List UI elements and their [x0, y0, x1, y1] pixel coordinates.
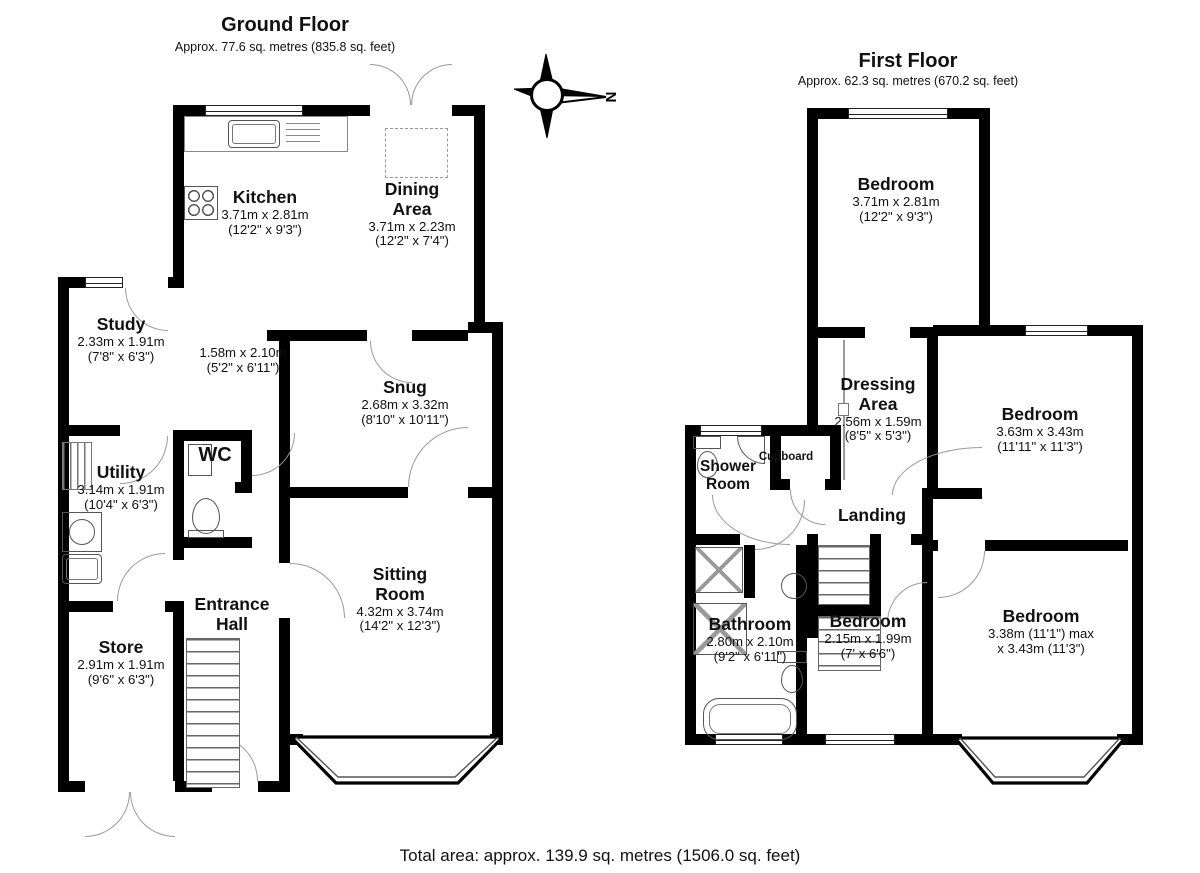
room-label-landing: Landing	[817, 506, 927, 526]
room-dim-metric: 2.91m x 1.91m	[46, 658, 196, 673]
washing-machine	[62, 512, 102, 552]
bay-window	[955, 733, 1125, 789]
room-name: Dining Area	[367, 180, 457, 220]
first-floor-subtitle: Approx. 62.3 sq. metres (670.2 sq. feet)	[798, 74, 1018, 88]
wall	[807, 338, 818, 425]
wall	[258, 781, 290, 792]
room-name: Bedroom	[798, 612, 938, 632]
room-dim-metric: 4.32m x 3.74m	[350, 605, 450, 620]
room-dim-imperial: (11'11" x 11'3")	[955, 440, 1125, 455]
shower-tray	[695, 547, 743, 593]
kitchen-sink	[228, 120, 280, 148]
door-arc	[938, 551, 985, 598]
room-name: Entrance Hall	[177, 595, 287, 635]
room-name: Bedroom	[956, 607, 1126, 627]
room-dim-metric: 3.71m x 2.81m	[185, 208, 345, 223]
toilet	[192, 498, 220, 534]
room-dim-metric: 3.71m x 2.23m	[367, 220, 457, 235]
wall	[184, 537, 252, 548]
room-label-cupboard: Cupboard	[751, 451, 821, 464]
bathtub	[703, 698, 797, 740]
utility-sink	[62, 554, 102, 584]
room-dim-metric: 2.68m x 3.32m	[325, 398, 485, 413]
wall	[685, 534, 740, 545]
dining-dashed-area	[385, 128, 448, 178]
room-dim-metric: 2.15m x 1.99m	[798, 632, 938, 647]
ground-floor-subtitle: Approx. 77.6 sq. metres (835.8 sq. feet)	[175, 40, 395, 54]
wall	[279, 618, 290, 781]
wall	[807, 327, 865, 338]
wall	[895, 734, 962, 745]
bay-window	[291, 732, 503, 790]
ground-floor-title: Ground Floor	[221, 14, 349, 37]
room-dim-line1: 3.38m (11'1") max	[956, 627, 1126, 642]
ground-floor-plan: Kitchen 3.71m x 2.81m (12'2" x 9'3") Din…	[58, 90, 510, 792]
room-dim-metric: 3.14m x 1.91m	[46, 483, 196, 498]
wall	[468, 487, 503, 498]
compass-north-icon: N	[506, 48, 618, 144]
room-dim-metric: 2.56m x 1.59m	[823, 415, 933, 430]
room-dim-imperial: (9'6" x 6'3")	[46, 673, 196, 688]
window	[825, 734, 895, 745]
french-door-arc	[411, 64, 452, 105]
room-label-bedroom2: Bedroom 3.63m x 3.43m (11'11" x 11'3")	[955, 405, 1125, 455]
wall	[933, 540, 938, 551]
door-arc	[408, 427, 468, 487]
wall	[985, 540, 1128, 551]
wall	[168, 277, 184, 288]
room-name: Store	[46, 638, 196, 658]
room-name: Dressing Area	[823, 375, 933, 415]
room-name: Cupboard	[751, 451, 821, 464]
room-dim-metric: 1.58m x 2.10m	[168, 346, 318, 361]
pedestal-basin	[781, 573, 807, 599]
wall	[303, 105, 370, 116]
wall	[825, 479, 841, 490]
room-label-kitchen: Kitchen 3.71m x 2.81m (12'2" x 9'3")	[185, 188, 345, 238]
room-label-utility: Utility 3.14m x 1.91m (10'4" x 6'3")	[46, 463, 196, 513]
wall	[474, 105, 485, 330]
wall	[770, 479, 790, 490]
room-name: Kitchen	[185, 188, 345, 208]
french-door-arc	[370, 64, 411, 105]
wall	[58, 781, 85, 792]
room-label-hall-space: 1.58m x 2.10m (5'2" x 6'11")	[168, 346, 318, 376]
door-arc	[290, 563, 345, 618]
room-name: Bedroom	[816, 175, 976, 195]
toilet-base	[188, 530, 224, 538]
room-label-sitting-room: Sitting Room 4.32m x 3.74m (14'2" x 12'3…	[350, 565, 450, 634]
room-dim-line2: x 3.43m (11'3")	[956, 642, 1126, 657]
wall	[1132, 325, 1143, 745]
window	[1025, 325, 1088, 336]
room-dim-imperial: (7' x 6'6")	[798, 647, 938, 662]
first-floor-title: First Floor	[859, 50, 958, 73]
wall	[412, 330, 468, 341]
room-name: Snug	[325, 378, 485, 398]
room-label-dressing: Dressing Area 2.56m x 1.59m (8'5" x 5'3"…	[823, 375, 933, 444]
room-dim-metric: 3.71m x 2.81m	[816, 195, 976, 210]
staircase	[818, 545, 870, 605]
window	[700, 425, 762, 436]
room-dim-metric: 3.63m x 3.43m	[955, 425, 1125, 440]
door-arc	[130, 792, 175, 837]
window	[85, 277, 123, 288]
room-dim-imperial: (10'4" x 6'3")	[46, 498, 196, 513]
drainer	[286, 123, 320, 146]
room-label-bedroom4: Bedroom 3.38m (11'1") max x 3.43m (11'3"…	[956, 607, 1126, 657]
wall	[184, 430, 252, 441]
wall	[173, 610, 184, 781]
wc-cistern	[693, 436, 721, 449]
room-dim-imperial: (8'5" x 5'3")	[823, 429, 933, 444]
room-dim-imperial: (12'2" x 9'3")	[816, 210, 976, 225]
room-label-bedroom1: Bedroom 3.71m x 2.81m (12'2" x 9'3")	[816, 175, 976, 225]
wall	[933, 325, 1025, 336]
door-arc	[85, 792, 130, 837]
total-area-text: Total area: approx. 139.9 sq. metres (15…	[400, 846, 801, 866]
room-name: Study	[46, 315, 196, 335]
room-name: Utility	[46, 463, 196, 483]
wall	[58, 425, 120, 436]
wall	[492, 330, 503, 745]
room-dim-imperial: (12'2" x 9'3")	[185, 223, 345, 238]
door-arc	[117, 553, 165, 601]
toilet	[781, 665, 803, 693]
wall	[235, 482, 252, 493]
room-label-entrance-hall: Entrance Hall	[177, 595, 287, 635]
room-dim-imperial: (8'10" x 10'11")	[325, 413, 485, 428]
room-label-bedroom3: Bedroom 2.15m x 1.99m (7' x 6'6")	[798, 612, 938, 662]
wall	[979, 108, 990, 336]
room-label-dining: Dining Area 3.71m x 2.23m (12'2" x 7'4")	[367, 180, 457, 249]
wall	[58, 601, 113, 612]
wall	[173, 105, 184, 287]
wall	[911, 534, 922, 545]
room-dim-imperial: (14'2" x 12'3")	[350, 619, 450, 634]
room-dim-imperial: (5'2" x 6'11")	[168, 361, 318, 376]
window	[205, 105, 303, 116]
room-name: Landing	[817, 506, 927, 526]
room-name: Bedroom	[955, 405, 1125, 425]
floorplan-page: Ground Floor Approx. 77.6 sq. metres (83…	[0, 0, 1200, 873]
wall	[290, 487, 408, 498]
room-dim-imperial: (12'2" x 7'4")	[367, 234, 457, 249]
window	[848, 108, 948, 119]
room-label-store: Store 2.91m x 1.91m (9'6" x 6'3")	[46, 638, 196, 688]
svg-text:N: N	[602, 92, 618, 103]
first-floor-plan: Bedroom 3.71m x 2.81m (12'2" x 9'3") Dre…	[685, 103, 1147, 765]
room-label-snug: Snug 2.68m x 3.32m (8'10" x 10'11")	[325, 378, 485, 428]
room-name: Sitting Room	[350, 565, 450, 605]
wall	[744, 545, 755, 598]
